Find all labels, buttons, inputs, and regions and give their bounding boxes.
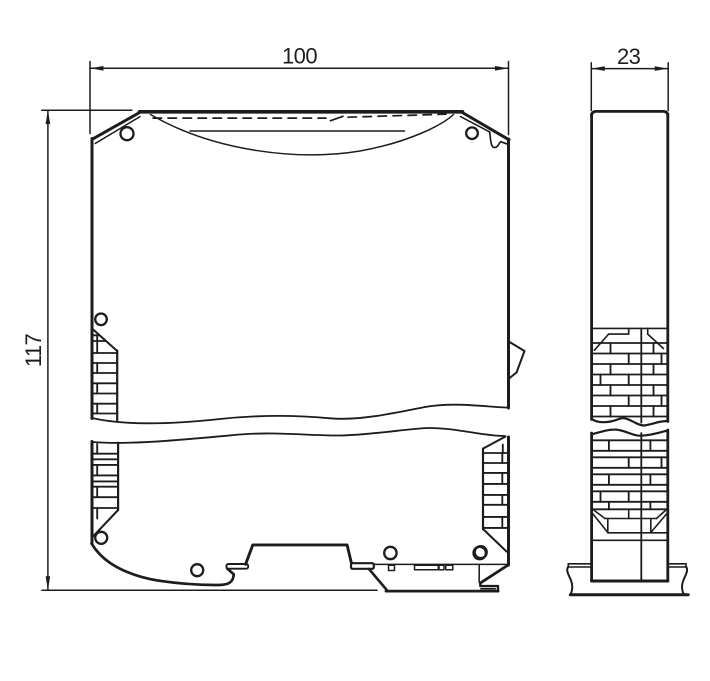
svg-text:117: 117 [21, 334, 46, 368]
svg-text:23: 23 [617, 44, 641, 69]
svg-text:100: 100 [282, 44, 317, 69]
